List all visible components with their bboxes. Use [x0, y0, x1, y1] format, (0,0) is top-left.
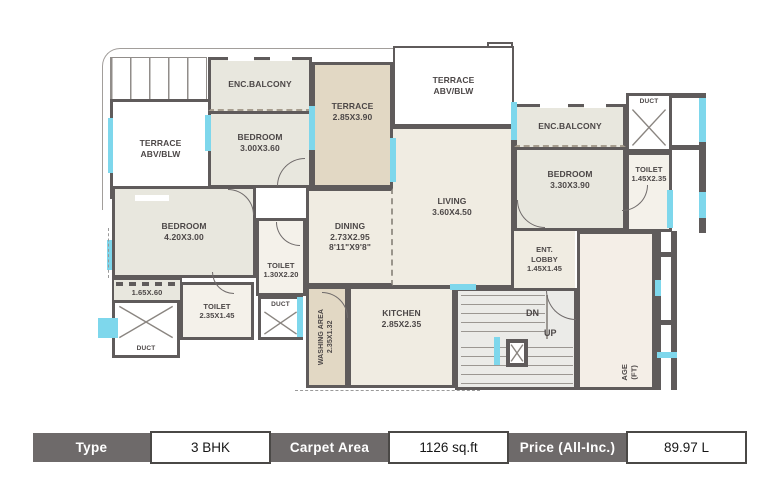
room-kitchen: KITCHEN2.85X2.35 [348, 286, 455, 388]
room-label: DUCT [261, 301, 300, 308]
terrace-railing [110, 57, 207, 99]
window-block [98, 318, 118, 338]
type-value: 3 BHK [191, 440, 230, 455]
window [657, 352, 677, 358]
room-passage: AGE(FT) [577, 231, 655, 390]
room-label: BEDROOM3.30X3.90 [547, 169, 592, 190]
price-value: 89.97 L [664, 440, 709, 455]
room-label: ENC.BALCONY [538, 121, 601, 132]
room-label: DUCT [115, 345, 177, 352]
window [205, 115, 211, 151]
wall-stub [671, 93, 701, 98]
wall-opening [584, 103, 606, 108]
duct-cross-icon [117, 305, 175, 339]
wall-opening [135, 195, 169, 201]
room-label: TERRACEABV/BLW [433, 75, 475, 96]
carpet-area-value-cell: 1126 sq.ft [388, 431, 509, 464]
stairs-up-label: UP [544, 328, 557, 338]
room-enc-balcony-top: ENC.BALCONY [208, 57, 312, 111]
price-value-cell: 89.97 L [626, 431, 747, 464]
room-label: TOILET1.30X2.20 [263, 261, 298, 280]
info-table: Type 3 BHK Carpet Area 1126 sq.ft Price … [33, 431, 747, 464]
elevator-box [506, 339, 528, 367]
price-label-cell: Price (All-Inc.) [509, 433, 626, 462]
duct-cross-icon [631, 108, 667, 147]
room-toilet-left: TOILET2.35X1.45 [180, 282, 254, 340]
wall-opening [540, 103, 568, 108]
wall-stub [672, 145, 701, 150]
wall-stub [655, 320, 677, 325]
carpet-area-label: Carpet Area [290, 440, 369, 455]
window [511, 102, 517, 140]
room-enc-balcony-right: ENC.BALCONY [514, 104, 626, 147]
room-living: LIVING3.60X4.50 [393, 126, 514, 288]
room-terrace-left: TERRACEABV/BLW [110, 99, 211, 199]
floor-plan: TERRACEABV/BLW ENC.BALCONY BEDROOM3.00X3… [0, 0, 780, 420]
room-label: TERRACEABV/BLW [140, 138, 182, 159]
room-terrace-mid: TERRACE2.85X3.90 [312, 62, 393, 188]
window [309, 106, 315, 150]
carpet-area-label-cell: Carpet Area [271, 433, 388, 462]
window [390, 138, 396, 182]
room-label: BEDROOM3.00X3.60 [237, 132, 282, 153]
wall-stub [655, 252, 677, 257]
price-label: Price (All-Inc.) [520, 440, 616, 455]
room-dining: DINING2.73X2.958'11"X9'8" [306, 188, 393, 286]
carpet-area-value: 1126 sq.ft [419, 440, 477, 455]
window [494, 337, 500, 365]
window [108, 118, 113, 173]
room-label: BEDROOM4.20X3.00 [161, 221, 206, 242]
window [699, 98, 706, 142]
room-duct-left: DUCT [112, 300, 180, 358]
type-value-cell: 3 BHK [150, 431, 271, 464]
room-ent-lobby: ENT.LOBBY1.45X1.45 [514, 231, 575, 288]
room-label: DUCT [629, 98, 669, 105]
room-label: 1.65X.60 [132, 288, 163, 297]
window [667, 190, 673, 228]
room-label: LIVING3.60X4.50 [432, 196, 472, 217]
room-label: KITCHEN2.85X2.35 [382, 308, 422, 329]
floor-plan-page: TERRACEABV/BLW ENC.BALCONY BEDROOM3.00X3… [0, 0, 780, 500]
window [297, 297, 303, 337]
stairs-down-label: DN [526, 308, 539, 318]
wall-opening [228, 56, 254, 61]
duct-cross-icon [263, 311, 298, 335]
dashed-line [108, 228, 110, 278]
room-label: DINING2.73X2.958'11"X9'8" [329, 221, 371, 253]
type-label: Type [76, 440, 108, 455]
room-label: ENT.LOBBY1.45X1.45 [527, 245, 562, 273]
room-terrace-top: TERRACEABV/BLW [393, 46, 514, 126]
type-label-cell: Type [33, 433, 150, 462]
room-label: ENC.BALCONY [228, 79, 291, 90]
room-label: TOILET1.45X2.35 [631, 165, 666, 184]
room-duct-top-right: DUCT [626, 93, 672, 152]
hatch-strip [116, 282, 178, 286]
room-label: AGE(FT) [620, 364, 639, 381]
window [699, 192, 706, 218]
elevator-cross-icon [510, 343, 524, 363]
wall-opening [270, 56, 292, 61]
window [655, 280, 661, 296]
dashed-line [295, 390, 480, 392]
room-label: TOILET2.35X1.45 [199, 302, 234, 321]
window [450, 284, 476, 290]
room-label: TERRACE2.85X3.90 [332, 101, 374, 122]
